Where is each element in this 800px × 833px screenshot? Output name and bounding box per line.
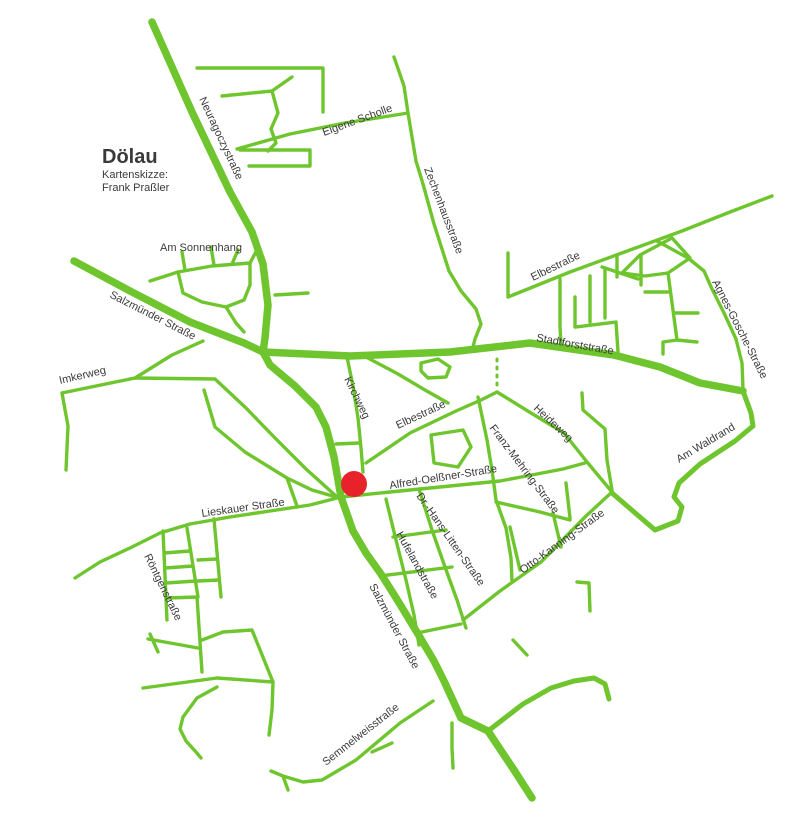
road-stadtforststrasse [263, 343, 743, 391]
street-label-agnes-gosche-strasse: Agnes-Gosche-Straße [709, 278, 769, 381]
road-am-sonnenhang [150, 263, 250, 281]
minor-road [143, 597, 273, 688]
minor-road [366, 357, 448, 403]
road-bottom-ne-branch [488, 678, 609, 731]
minor-road [421, 359, 450, 378]
street-label-zechenhausstrasse: Zechenhausstraße [421, 166, 465, 256]
map-subtitle-line1: Kartenskizze: [102, 169, 168, 181]
map-subtitle-line2: Frank Praßler [102, 182, 170, 194]
minor-road [431, 430, 471, 467]
minor-road [135, 341, 203, 378]
street-label-stadtforststrasse: Stadtforststraße [535, 332, 614, 357]
minor-road [336, 443, 359, 444]
street-label-hufelandstrasse: Hufelandstraße [393, 530, 440, 602]
street-label-semmelweisstrasse: Semmelweisstraße [320, 701, 401, 768]
minor-road [645, 273, 698, 354]
road-imkerweg [62, 378, 336, 496]
minor-road [197, 68, 323, 112]
map-title: Dölau [102, 146, 158, 168]
location-marker [341, 471, 367, 497]
minor-road [62, 393, 68, 470]
street-label-heideweg: Heideweg [531, 402, 575, 444]
street-label-am-sonnenhang: Am Sonnenhang [160, 242, 242, 254]
minor-road [452, 582, 590, 768]
map-sketch-doelau: Dölau Kartenskizze: Frank Praßler Neurag… [0, 0, 800, 833]
street-label-eigene-scholle: Eigene Scholle [321, 102, 394, 138]
minor-road [180, 687, 217, 758]
minor-road [622, 238, 690, 276]
street-label-roentgenstrasse: Röntgenstraße [141, 552, 184, 623]
map-svg: Dölau Kartenskizze: Frank Praßler Neurag… [0, 0, 800, 833]
minor-road [222, 77, 310, 166]
